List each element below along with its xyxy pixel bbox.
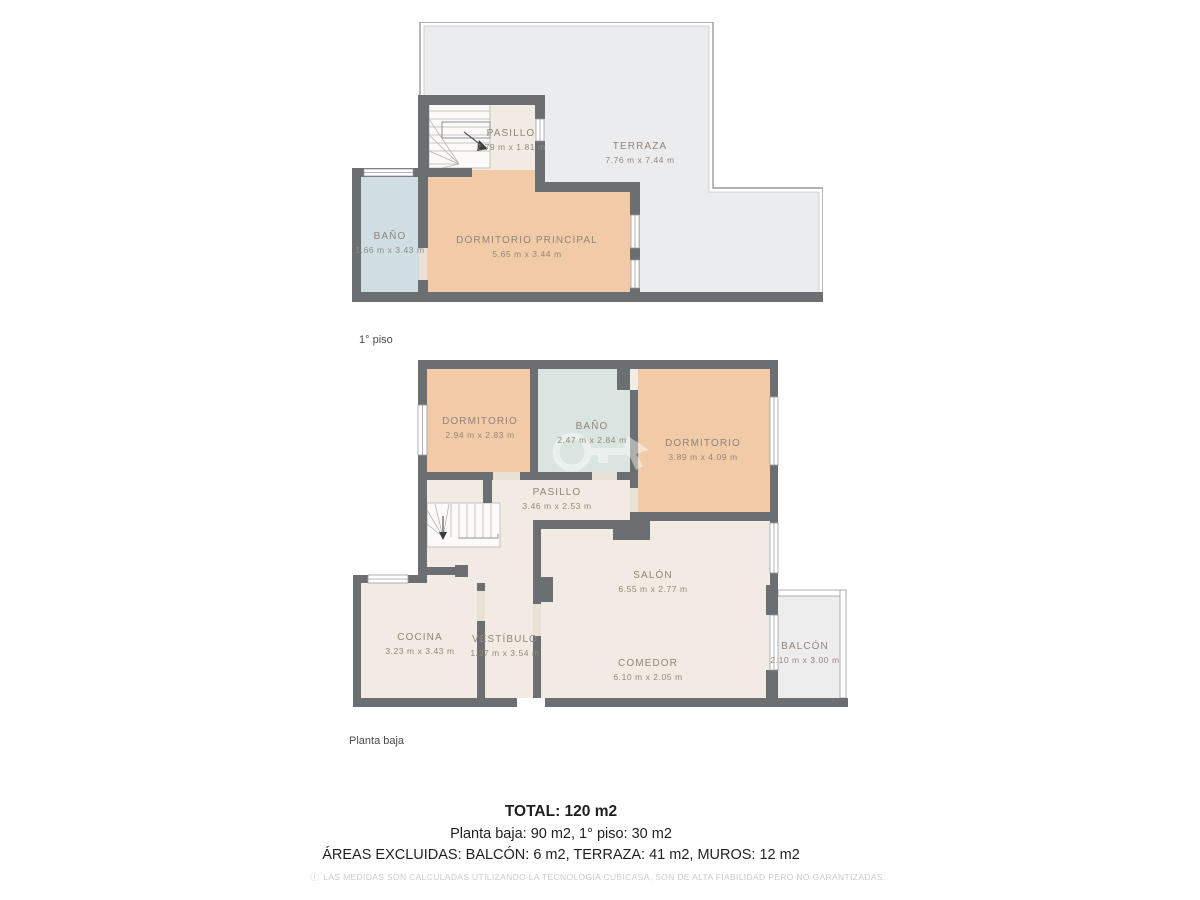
info-icon: ⓘ	[310, 872, 319, 882]
room-dims: 6.10 m x 2.05 m	[613, 672, 682, 682]
area-summary: TOTAL: 120 m2 Planta baja: 90 m2, 1° pis…	[322, 803, 800, 868]
first-floor-plan	[352, 22, 823, 305]
room-label-bano-f1: BAÑO 1.66 m x 3.43 m	[355, 231, 424, 255]
room-label-dormitorio-2: DORMITORIO 3.89 m x 4.09 m	[665, 438, 741, 462]
room-name: COMEDOR	[613, 658, 682, 669]
room-name: SALÓN	[618, 570, 687, 581]
room-dims: 2.47 m x 2.84 m	[557, 435, 626, 445]
room-name: DORMITORIO	[442, 416, 518, 427]
room-name: BALCÓN	[770, 641, 839, 652]
room-dims: 3.46 m x 2.53 m	[522, 501, 591, 511]
room-dims: 2.79 m x 1.81 m	[476, 142, 545, 152]
room-label-balcon: BALCÓN 2.10 m x 3.00 m	[770, 641, 839, 665]
room-dims: 1.27 m x 3.54 m	[470, 648, 539, 658]
room-name: TERRAZA	[605, 141, 674, 152]
total-area: TOTAL: 120 m2	[322, 803, 800, 821]
floor-areas: Planta baja: 90 m2, 1° piso: 30 m2	[322, 826, 800, 842]
room-name: DORMITORIO PRINCIPAL	[456, 235, 598, 246]
room-name: PASILLO	[476, 128, 545, 139]
room-label-dormitorio-principal: DORMITORIO PRINCIPAL 5.65 m x 3.44 m	[456, 235, 598, 259]
room-dims: 6.55 m x 2.77 m	[618, 584, 687, 594]
room-name: BAÑO	[355, 231, 424, 242]
room-name: DORMITORIO	[665, 438, 741, 449]
excluded-areas: ÁREAS EXCLUIDAS: BALCÓN: 6 m2, TERRAZA: …	[322, 847, 800, 863]
room-label-cocina: COCINA 3.23 m x 3.43 m	[385, 632, 454, 656]
room-dims: 3.23 m x 3.43 m	[385, 646, 454, 656]
room-label-bano-f0: BAÑO 2.47 m x 2.84 m	[557, 421, 626, 445]
room-dims: 2.10 m x 3.00 m	[770, 655, 839, 665]
room-label-pasillo-f0: PASILLO 3.46 m x 2.53 m	[522, 487, 591, 511]
room-dims: 5.65 m x 3.44 m	[456, 249, 598, 259]
room-label-salon: SALÓN 6.55 m x 2.77 m	[618, 570, 687, 594]
measurement-disclaimer: ⓘLAS MEDIDAS SON CALCULADAS UTILIZANDO L…	[310, 871, 885, 883]
room-name: VESTÍBULO	[470, 634, 539, 645]
room-label-pasillo-f1: PASILLO 2.79 m x 1.81 m	[476, 128, 545, 152]
floorplan-page: PASILLO 2.79 m x 1.81 m TERRAZA 7.76 m x…	[0, 0, 1200, 900]
room-name: BAÑO	[557, 421, 626, 432]
disclaimer-text: LAS MEDIDAS SON CALCULADAS UTILIZANDO LA…	[323, 872, 885, 882]
room-dims: 7.76 m x 7.44 m	[605, 155, 674, 165]
room-dims: 1.66 m x 3.43 m	[355, 245, 424, 255]
room-name: COCINA	[385, 632, 454, 643]
stairs-icon	[427, 503, 500, 547]
room-dims: 3.89 m x 4.09 m	[665, 452, 741, 462]
room-label-vestibulo: VESTÍBULO 1.27 m x 3.54 m	[470, 634, 539, 658]
floor-caption-ground-floor: Planta baja	[349, 735, 404, 747]
room-label-comedor: COMEDOR 6.10 m x 2.05 m	[613, 658, 682, 682]
floor-caption-first-floor: 1° piso	[359, 334, 393, 346]
room-dims: 2.94 m x 2.83 m	[442, 430, 518, 440]
room-label-terraza: TERRAZA 7.76 m x 7.44 m	[605, 141, 674, 165]
room-label-dormitorio-1: DORMITORIO 2.94 m x 2.83 m	[442, 416, 518, 440]
room-name: PASILLO	[522, 487, 591, 498]
